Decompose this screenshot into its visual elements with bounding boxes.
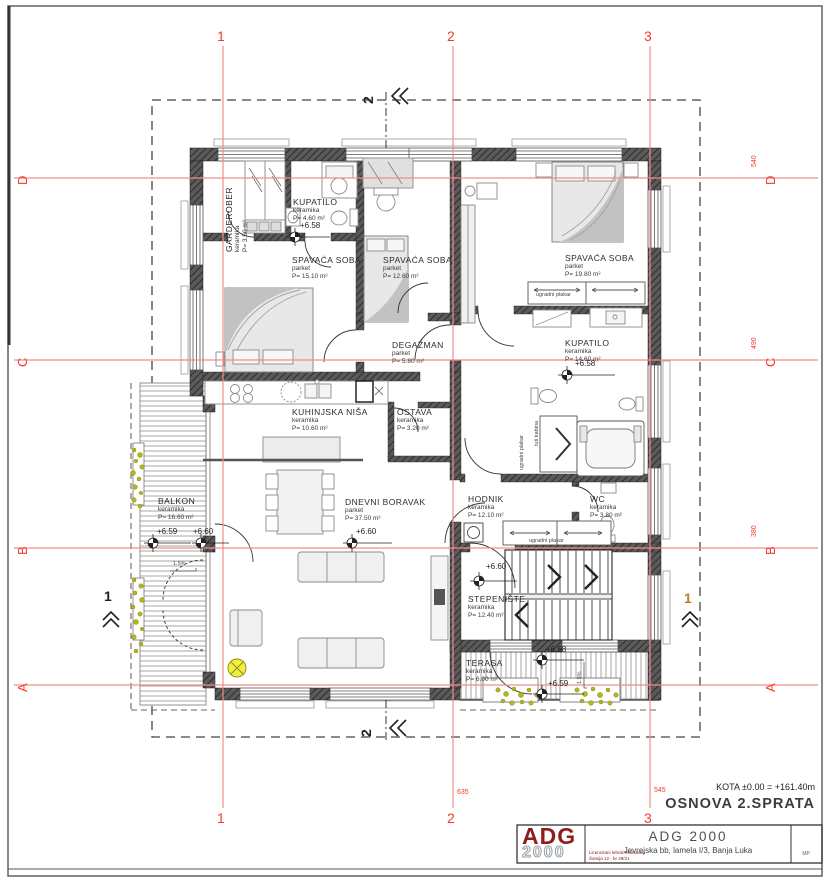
axis-letter-D-right: D <box>763 176 778 185</box>
axis-letter-B-right: B <box>763 546 778 555</box>
axis-number-3-top: 3 <box>644 28 652 44</box>
room-label-garderober: GARDEROBER keramika P= 3.50 m² <box>224 187 250 252</box>
level-terasa-1: +6.58 <box>546 645 566 654</box>
level-kupatilo-right: +6.58 <box>575 359 595 368</box>
wardrobe-label-vertical: ugradni plakar <box>519 435 526 470</box>
slope-label-balkon: 1.5% <box>173 561 186 568</box>
axis-letter-B-left: B <box>15 546 30 555</box>
axis-letter-A-left: A <box>15 683 30 692</box>
axis-letter-D-left: D <box>15 176 30 185</box>
title-area: KOTA ±0.00 = +161.40m OSNOVA 2.SPRATA <box>600 782 815 812</box>
axis-letter-C-left: C <box>15 358 30 367</box>
room-label-terasa: TERASA keramika P= 6.00 m² <box>466 658 503 684</box>
axis-letter-A-right: A <box>763 683 778 692</box>
kota-note: KOTA ±0.00 = +161.40m <box>600 782 815 792</box>
level-kupatilo-top: +6.58 <box>300 221 320 230</box>
room-label-ostava: OSTAVA keramika P= 3.20 m² <box>397 407 432 433</box>
drawing-title: OSNOVA 2.SPRATA <box>600 796 815 812</box>
dim-right-490: 490 <box>751 337 758 349</box>
wardrobe-label-bedroom: ugradni plakar <box>536 292 571 299</box>
section-2-bottom: 2 <box>358 729 374 737</box>
section-1-left: 1 <box>104 588 112 604</box>
room-label-spavaca-2: SPAVAĆA SOBA parket P= 12.60 m² <box>383 255 452 281</box>
floor-plan-canvas <box>0 0 830 886</box>
slope-label-terasa: 1.5% <box>577 671 584 684</box>
stamp-cell: MP. <box>791 851 822 857</box>
dim-bottom-635: 635 <box>457 789 469 796</box>
axis-letter-C-right: C <box>763 358 778 367</box>
room-label-dnevni-boravak: DNEVNI BORAVAK parket P= 37.50 m² <box>345 497 426 523</box>
room-label-spavaca-1: SPAVAĆA SOBA parket P= 15.10 m² <box>292 255 361 281</box>
license-note-line2: Šamija 12 - br 29/21 <box>589 856 630 861</box>
adg-logo-year: 2000 <box>522 845 566 861</box>
axis-number-2-top: 2 <box>447 28 455 44</box>
floor-plan-page: 1 2 3 1 2 3 D C B A D C B A 540 490 380 … <box>0 0 830 886</box>
company-name: ADG 2000 <box>585 829 791 844</box>
section-1-right: 1 <box>684 590 692 606</box>
level-dnevni: +6.60 <box>356 527 376 536</box>
room-label-wc: WC keramika P= 3.80 m² <box>590 494 622 520</box>
dim-right-380: 380 <box>751 525 758 537</box>
axis-number-1-top: 1 <box>217 28 225 44</box>
license-note-line1: Licencirani tehnik Milosavka <box>589 850 645 855</box>
room-label-kuhinjska-nisa: KUHINJSKA NIŠA keramika P= 10.60 m² <box>292 407 368 433</box>
room-label-stepeniste: STEPENIŠTE keramika P= 12.40 m² <box>468 594 525 620</box>
dim-right-540: 540 <box>751 155 758 167</box>
room-label-spavaca-3: SPAVAĆA SOBA parket P= 19.80 m² <box>565 253 634 279</box>
shower-label: tuš kabina <box>534 421 541 446</box>
level-balkon-2: +6.60 <box>193 527 213 536</box>
section-2-top: 2 <box>360 96 376 104</box>
level-stepeniste: +6.60 <box>486 562 506 571</box>
room-label-hodnik: HODNIK keramika P= 12.10 m² <box>468 494 504 520</box>
room-label-degazman: DEGAŽMAN parket P= 5.80 m² <box>392 340 444 366</box>
room-label-balkon: BALKON keramika P= 16.60 m² <box>158 496 195 522</box>
wardrobe-label-hodnik: ugradni plakar <box>529 538 564 545</box>
axis-number-3-bottom: 3 <box>644 810 652 826</box>
axis-number-1-bottom: 1 <box>217 810 225 826</box>
room-label-kupatilo-top: KUPATILO keramika P= 4.60 m² <box>293 197 337 223</box>
axis-number-2-bottom: 2 <box>447 810 455 826</box>
level-terasa-2: +6.59 <box>548 679 568 688</box>
level-balkon-1: +6.59 <box>157 527 177 536</box>
